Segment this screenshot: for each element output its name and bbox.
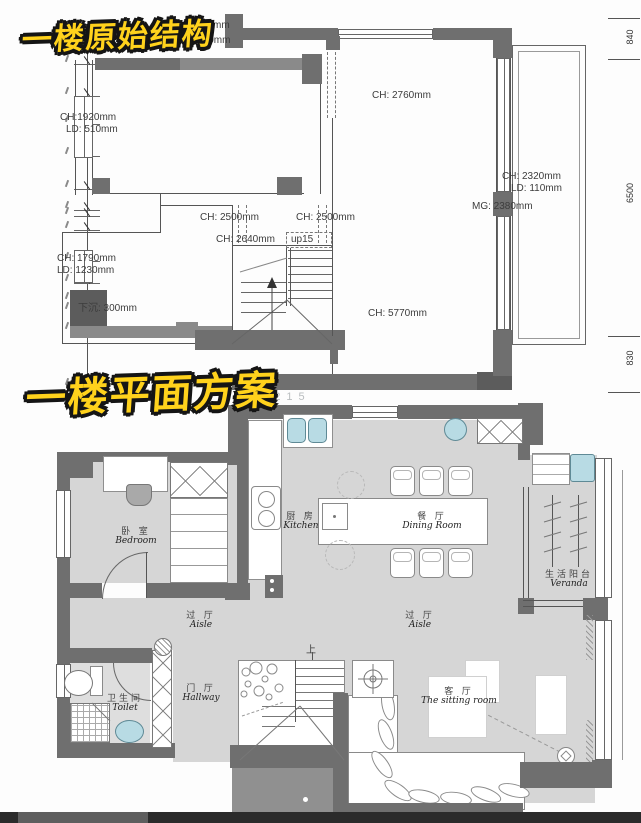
title-floor-plan: 一楼平面方案 — [24, 358, 280, 425]
wall-segment — [520, 762, 612, 788]
room-label-en: The sitting room — [404, 696, 514, 706]
room-label-en: Toilet — [70, 703, 180, 713]
room-label-en: Bedroom — [81, 536, 191, 546]
side-cabinet — [535, 675, 567, 735]
screenshot-root: mm LD:1020mm CH: 2760mm CH:1920mm LD: 51… — [0, 0, 641, 823]
room-label-en: Veranda — [514, 579, 624, 589]
room-label-en: Kitchen — [246, 521, 356, 531]
room-label-en: Dining Room — [377, 521, 487, 531]
room-label-en: Aisle — [365, 620, 475, 630]
floor-plan: 00215 — [0, 0, 641, 823]
room-label-en: Aisle — [146, 620, 256, 630]
letterbox-segment — [18, 812, 148, 823]
